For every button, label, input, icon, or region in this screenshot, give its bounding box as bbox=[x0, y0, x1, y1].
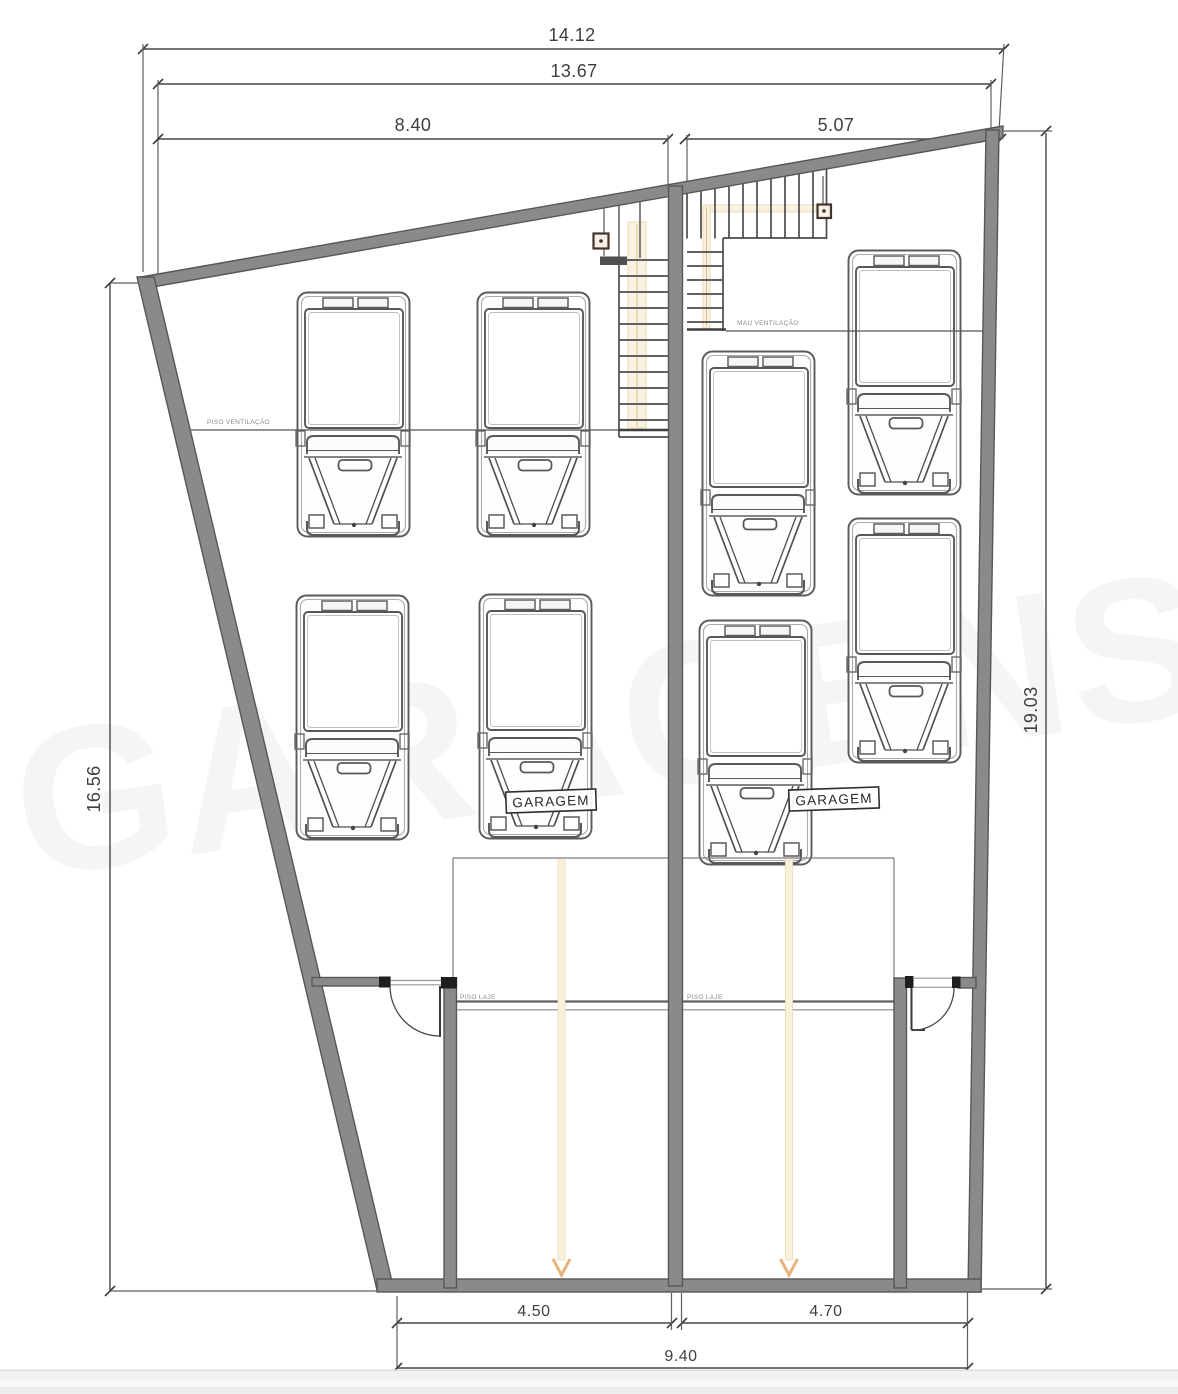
svg-text:19.03: 19.03 bbox=[1021, 686, 1041, 733]
svg-text:PISO VENTILAÇÃO: PISO VENTILAÇÃO bbox=[207, 417, 270, 426]
svg-text:PISO LAJE: PISO LAJE bbox=[460, 994, 496, 1001]
svg-text:5.07: 5.07 bbox=[818, 115, 855, 135]
svg-text:9.40: 9.40 bbox=[664, 1348, 697, 1365]
svg-text:MAU VENTILAÇÃO: MAU VENTILAÇÃO bbox=[737, 318, 799, 327]
svg-text:14.12: 14.12 bbox=[548, 25, 595, 45]
svg-text:PISO LAJE: PISO LAJE bbox=[687, 994, 723, 1001]
svg-text:GARAGEM: GARAGEM bbox=[795, 791, 873, 809]
svg-text:16.56: 16.56 bbox=[84, 765, 104, 812]
svg-text:4.70: 4.70 bbox=[809, 1303, 842, 1320]
svg-text:13.67: 13.67 bbox=[550, 61, 597, 81]
svg-text:GARAGEM: GARAGEM bbox=[512, 793, 590, 811]
svg-text:4.50: 4.50 bbox=[517, 1303, 550, 1320]
svg-text:8.40: 8.40 bbox=[395, 115, 432, 135]
